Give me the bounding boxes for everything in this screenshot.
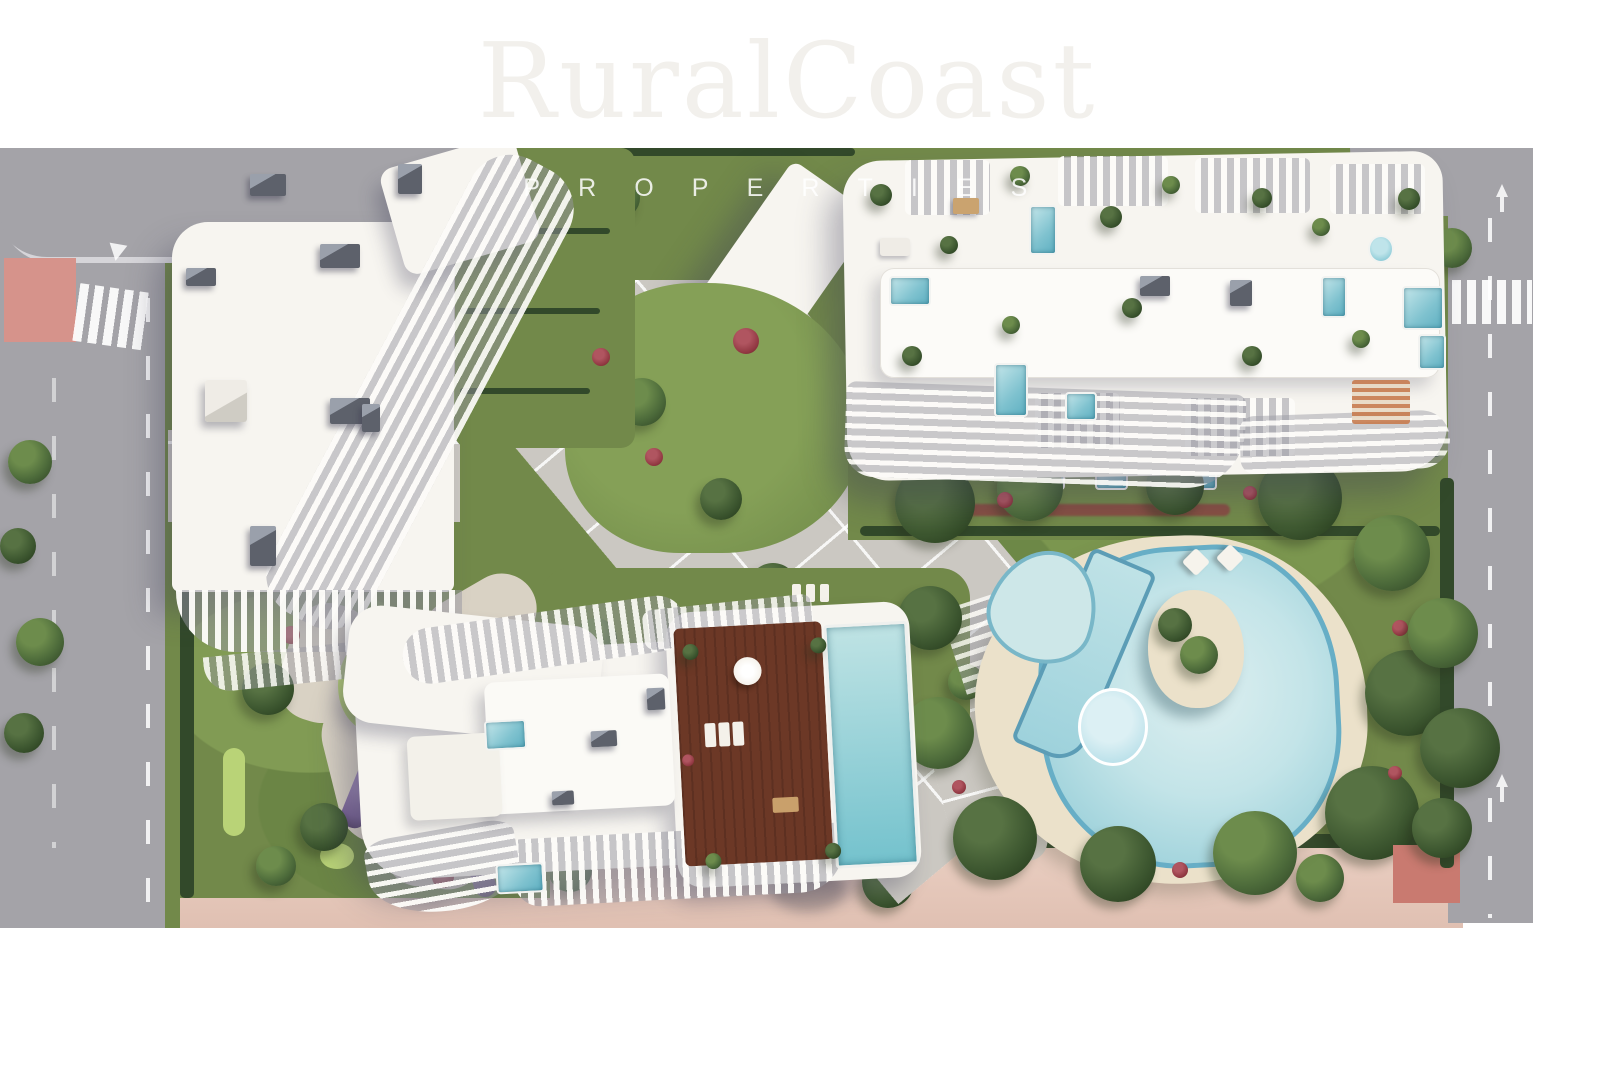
palm-tree — [300, 803, 348, 851]
garden-tree — [256, 846, 296, 886]
rooftop-rug — [1352, 380, 1410, 424]
rooftop-unit — [646, 687, 665, 710]
flower-accent — [1392, 620, 1408, 636]
rooftop-pool — [1418, 334, 1446, 370]
rooftop-unit — [186, 268, 216, 286]
rooftop-infinity-pool — [823, 621, 920, 869]
watermark-brand: RuralCoast — [478, 20, 1098, 142]
rooftop-pool — [889, 276, 931, 306]
street-tree — [1412, 798, 1472, 858]
rooftop-unit — [362, 404, 380, 432]
rooftop-planter — [1352, 330, 1370, 348]
pool-vegetation — [1080, 826, 1156, 902]
flower-accent — [997, 492, 1013, 508]
rooftop-planter — [1252, 188, 1272, 208]
street-tree — [0, 528, 36, 564]
rooftop-planter — [902, 346, 922, 366]
rooftop-planter — [1100, 206, 1122, 228]
rooftop-pool — [1065, 392, 1097, 421]
crosswalk — [72, 283, 153, 351]
flower-accent — [1388, 766, 1402, 780]
rooftop-unit — [398, 164, 422, 194]
rooftop-pool — [994, 363, 1028, 417]
rooftop-planter — [1122, 298, 1142, 318]
rooftop-unit — [250, 174, 286, 196]
yield-marking — [107, 243, 128, 263]
island-plants — [1158, 608, 1192, 642]
deck-dining-table — [772, 797, 799, 813]
street-tree — [1408, 598, 1478, 668]
road-arrow — [1496, 178, 1508, 197]
deck-lounger — [732, 721, 744, 746]
promenade-tree — [1296, 854, 1344, 902]
rooftop-pool — [1321, 276, 1347, 318]
red-pavement-patch — [4, 258, 76, 342]
rooftop-unit — [1140, 276, 1170, 296]
palm-tree — [700, 478, 742, 520]
rooftop-pool — [1402, 286, 1444, 330]
pool-vegetation — [1213, 811, 1297, 895]
rooftop-unit — [552, 790, 575, 805]
watermark-tagline: P R O P E R T I E S — [523, 174, 1045, 203]
rooftop-jacuzzi — [1368, 235, 1394, 263]
rooftop-pool — [495, 862, 545, 894]
rooftop-planter — [1398, 188, 1420, 210]
island-plants — [1180, 636, 1218, 674]
mini-golf-green — [223, 748, 245, 836]
pool-vegetation — [1354, 515, 1430, 591]
rooftop-planter — [1242, 346, 1262, 366]
flower-bed — [733, 328, 759, 354]
rooftop-unit — [1230, 280, 1252, 306]
rooftop-unit — [320, 244, 360, 268]
west-boundary-hedge — [180, 588, 194, 898]
kids-pool — [1078, 688, 1148, 766]
rooftop-pergola — [1195, 158, 1310, 213]
rooftop-unit — [250, 526, 276, 566]
flower-bed — [592, 348, 610, 366]
deck-lounger — [704, 723, 716, 748]
crosswalk — [1452, 280, 1532, 324]
rooftop-skylight — [205, 380, 247, 422]
street-tree — [8, 440, 52, 484]
street-tree — [1420, 708, 1500, 788]
development-site — [0, 148, 1533, 928]
aerial-render-canvas: RuralCoast P R O P E R T I E S — [0, 0, 1600, 1091]
lane-divider — [146, 298, 150, 928]
road-arrow — [1496, 768, 1508, 787]
lane-divider — [52, 378, 56, 848]
rooftop-unit — [590, 730, 617, 747]
rooftop-pool — [484, 719, 528, 751]
rooftop-pool — [1029, 205, 1057, 255]
rooftop-pergola — [1058, 156, 1168, 206]
rooftop-planter — [1312, 218, 1330, 236]
flower-bed — [645, 448, 663, 466]
flower-accent — [1172, 862, 1188, 878]
building-b-wave-facade — [1239, 409, 1451, 474]
rooftop-planter — [1162, 176, 1180, 194]
rooftop-planter — [1002, 316, 1020, 334]
rooftop-sofa — [880, 238, 910, 256]
flower-accent — [1243, 486, 1257, 500]
street-tree — [4, 713, 44, 753]
rooftop-planter — [940, 236, 958, 254]
building-c — [342, 590, 969, 927]
street-tree — [16, 618, 64, 666]
deck-lounger — [718, 722, 730, 747]
building-b-wave-facade — [843, 381, 1246, 490]
